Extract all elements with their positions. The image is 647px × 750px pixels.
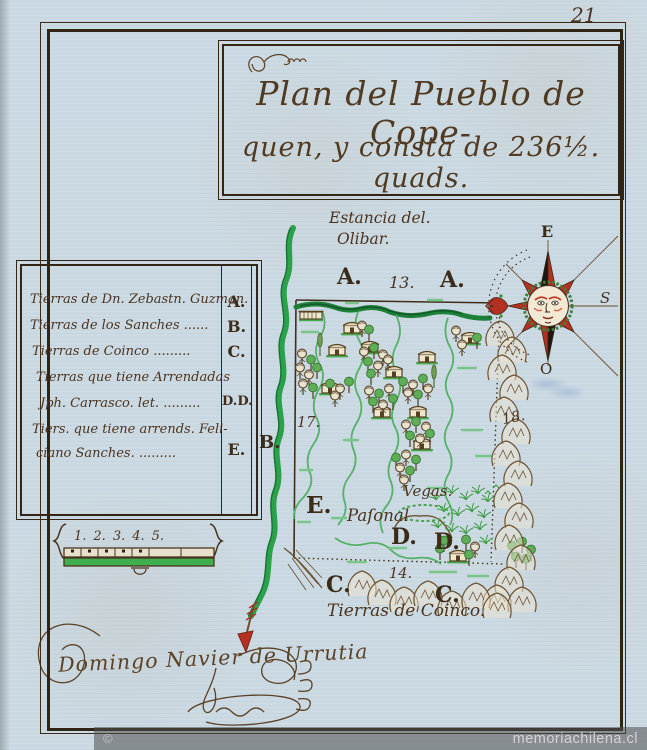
letter-a-left: A.: [337, 264, 362, 290]
number-13: 13.: [389, 273, 414, 292]
legend-entry: Tierras que tiene Arrendadas: [36, 370, 230, 385]
scale-number: 5.: [152, 529, 164, 544]
letter-b-outside: B.: [259, 432, 280, 453]
legend-entry: Tierras de Dn. Zebastn. Guzman.: [30, 292, 248, 307]
compass-letter-e: E: [541, 222, 553, 241]
letter-a-right: A.: [440, 267, 465, 293]
letter-d-2: D.: [434, 529, 460, 555]
number-17: 17.: [297, 415, 320, 431]
scan-edge-shadow: [0, 0, 10, 750]
scale-number: 3.: [113, 529, 125, 544]
fleur-de-lis-icon: [486, 294, 508, 317]
bluff-hatching: [284, 548, 322, 590]
legend-entry: Jph. Carrasco. let. .........: [40, 396, 200, 411]
scale-numbers: 1.2.3.4.5.: [74, 529, 171, 544]
compass-letter-s: S: [600, 289, 610, 307]
legend-entry: Tiers. que tiene arrends. Feli-: [32, 422, 228, 437]
title-cartouche: Plan del Pueblo de Cope- quen, y consta …: [222, 44, 620, 196]
legend-box: Tierras de Dn. Zebastn. Guzman. Tierras …: [20, 264, 258, 516]
legend-letter-b: B.: [222, 317, 251, 336]
legend-entry: ciano Sanches. .........: [36, 446, 176, 461]
letter-c-1: C.: [326, 572, 351, 598]
scale-number: 4.: [132, 529, 144, 544]
tierras-coinco-label: Tierras de Coinco.: [327, 601, 485, 621]
estancia-label-line2: Olibar.: [337, 230, 389, 248]
legend-letter-c: C.: [222, 342, 251, 361]
copyright-icon: ©: [103, 731, 113, 746]
legend-letter-dd: D.D.: [222, 394, 251, 409]
map-title-line2: quen, y consta de 236½. quads.: [224, 132, 618, 194]
legend-letter-a: A.: [222, 292, 251, 311]
legend-entry: Tierras de los Sanches ......: [30, 318, 208, 333]
legend-letter-column: A. B. C. D.D. E.: [221, 266, 252, 514]
estancia-label-line1: Estancia del.: [329, 209, 431, 227]
page-number: 21: [571, 3, 596, 27]
legend-entry: Tierras de Coinco .........: [32, 344, 190, 359]
watermark-site: memoriachilena.cl: [513, 731, 638, 747]
legend-letter-e: E.: [222, 440, 251, 459]
faded-stamp: [532, 377, 582, 399]
scale-number: 1.: [74, 529, 86, 544]
pajonal-label: Paſonal: [347, 506, 409, 525]
manuscript-map-page: 21 Plan del Pueblo de Cope- quen, y cons…: [0, 0, 647, 750]
letter-d-1: D.: [391, 524, 417, 550]
houses: [299, 312, 482, 564]
vegas-label: Vegas.: [403, 482, 452, 500]
compass-letter-o: O: [540, 360, 552, 378]
letter-e: E.: [306, 492, 332, 519]
scale-number: 2.: [93, 529, 105, 544]
watermark-bar: © memoriachilena.cl: [94, 727, 647, 750]
number-14: 14.: [389, 566, 412, 582]
